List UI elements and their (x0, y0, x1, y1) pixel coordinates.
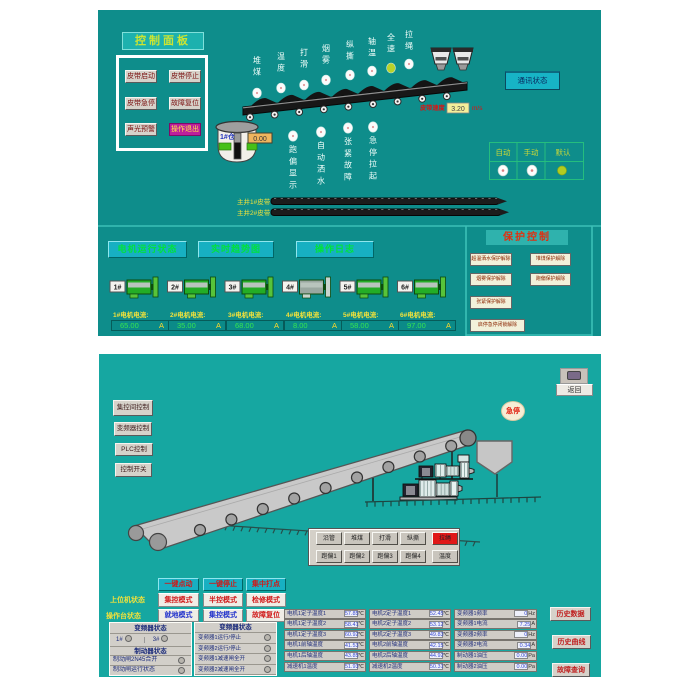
svg-text:打: 打 (300, 47, 308, 57)
svg-text:主井2#皮带: 主井2#皮带 (237, 208, 271, 217)
svg-text:洒: 洒 (317, 165, 325, 174)
svg-text:跑: 跑 (289, 145, 297, 154)
svg-text:2#: 2# (171, 285, 179, 292)
svg-text:1#: 1# (114, 285, 122, 292)
svg-text:紧: 紧 (344, 149, 352, 158)
svg-text:温: 温 (368, 49, 376, 58)
svg-text:停: 停 (369, 147, 377, 157)
svg-text:度: 度 (277, 63, 285, 73)
svg-text:全: 全 (387, 32, 395, 42)
svg-text:拉: 拉 (405, 29, 413, 39)
svg-text:拉: 拉 (369, 159, 377, 169)
svg-text:m/s: m/s (472, 105, 483, 112)
svg-text:主井1#皮带: 主井1#皮带 (237, 197, 271, 206)
svg-text:滑: 滑 (300, 59, 308, 69)
svg-text:水: 水 (317, 175, 325, 185)
svg-text:示: 示 (289, 180, 297, 189)
svg-text:温: 温 (277, 52, 285, 61)
svg-text:轴: 轴 (368, 36, 376, 46)
svg-text:皮带速度: 皮带速度 (419, 104, 446, 112)
svg-text:障: 障 (344, 171, 352, 181)
svg-text:煤: 煤 (253, 67, 261, 77)
svg-text:故: 故 (344, 160, 352, 170)
svg-text:张: 张 (344, 137, 352, 146)
svg-text:速: 速 (387, 45, 395, 54)
svg-text:自动: 自动 (496, 147, 511, 157)
svg-text:烟: 烟 (322, 44, 330, 53)
svg-text:雾: 雾 (322, 56, 330, 65)
svg-text:显: 显 (289, 169, 297, 178)
svg-text:起: 起 (369, 171, 377, 180)
svg-text:自: 自 (317, 140, 325, 150)
svg-text:撕: 撕 (346, 51, 354, 61)
svg-text:堆: 堆 (253, 55, 261, 65)
svg-text:偏: 偏 (289, 156, 297, 166)
svg-text:急: 急 (369, 135, 377, 145)
svg-text:0.00: 0.00 (253, 136, 267, 143)
svg-text:3#: 3# (229, 285, 237, 292)
svg-text:纵: 纵 (346, 40, 354, 49)
svg-text:绳: 绳 (405, 41, 413, 51)
svg-text:6#: 6# (401, 285, 409, 292)
svg-text:默认: 默认 (556, 147, 571, 157)
svg-text:动: 动 (317, 152, 325, 162)
svg-text:1#仓: 1#仓 (220, 132, 236, 141)
svg-text:3.20: 3.20 (451, 106, 465, 113)
svg-text:手动: 手动 (524, 147, 539, 157)
svg-text:5#: 5# (344, 285, 352, 292)
svg-text:4#: 4# (286, 285, 294, 292)
